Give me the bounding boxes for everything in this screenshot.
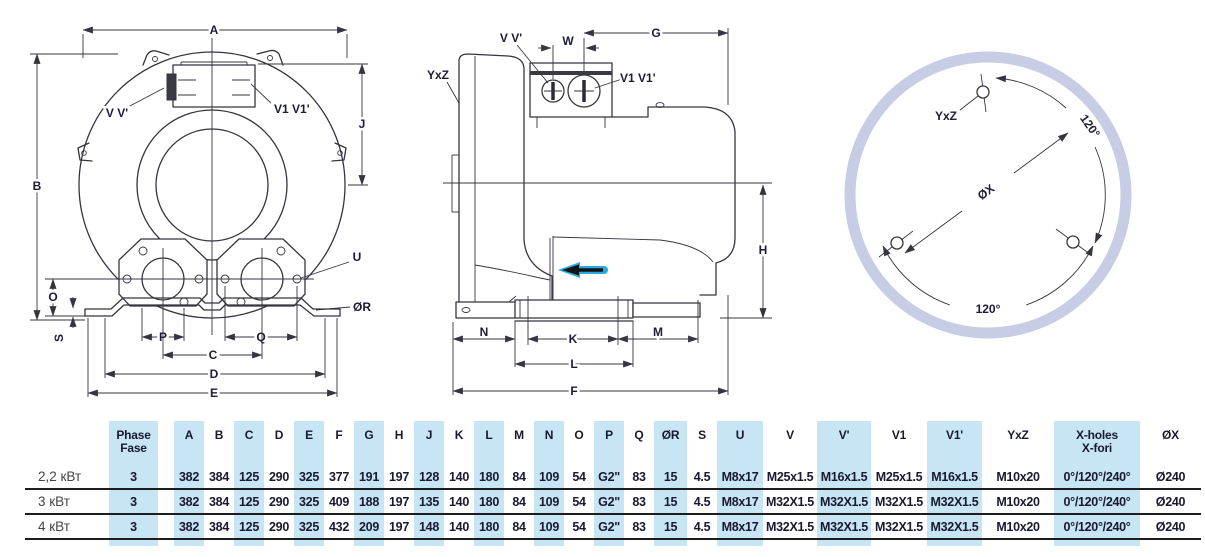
col-header: A [174,421,204,465]
table-cell: 140 [444,465,474,489]
dim-label-E: E [210,386,218,400]
label-OX: ØX [975,181,997,203]
table-cell: 180 [474,465,504,489]
table-cell: 4.5 [687,489,717,514]
col-header: M [504,421,534,465]
col-header: H [384,421,414,465]
table-cell: 384 [204,514,234,539]
col-header: J [414,421,444,465]
row-label: 3 кВт [25,489,109,514]
dim-label-H: H [759,243,768,257]
table-cell: M32X1.5 [763,514,817,539]
table-cell: G2" [594,514,624,539]
table-cell: M32X1.5 [927,514,982,539]
table-cell: 384 [204,465,234,489]
table-cell: M25x1.5 [763,465,817,489]
table-cell: 3 [109,514,158,539]
table-cell: 54 [564,489,594,514]
table-cell: M25x1.5 [871,465,927,489]
table-cell: 325 [294,489,324,514]
header-text: Fase [109,442,158,455]
table-cell: Ø240 [1140,465,1201,489]
table-cell: M8x17 [717,465,763,489]
table-cell: M32X1.5 [763,489,817,514]
dim-label-O: O [48,290,57,304]
table-cell: 0°/120°/240° [1054,465,1140,489]
table-cell: G2" [594,489,624,514]
table-cell: 15 [654,465,687,489]
table-cell: 148 [414,514,444,539]
table-cell: 4.5 [687,514,717,539]
table-cell: 3 [109,489,158,514]
table-cell: 140 [444,514,474,539]
table-cell: 15 [654,514,687,539]
table-cell: 409 [324,489,354,514]
table-cell: 125 [234,514,264,539]
table-cell: 128 [414,465,444,489]
dim-label-G: G [651,26,660,40]
row-label: 4 кВт [25,514,109,539]
stripe-footer [25,539,1201,546]
dim-label-C: C [209,348,218,362]
cable-gland [167,74,176,100]
table-cell: 209 [354,514,384,539]
table-cell: 382 [174,489,204,514]
gap-cell [158,489,174,514]
table-cell: 15 [654,489,687,514]
label-v1v1: V1 V1' [274,102,310,116]
table-cell: 135 [414,489,444,514]
label-OR: ØR [353,300,371,314]
dimensions-table: Phase Fase A B C D E F G H J K L M N O P… [25,421,1201,546]
dim-label-J: J [359,117,366,131]
table-cell: 325 [294,514,324,539]
dim-label-M: M [653,325,663,339]
dim-label-K: K [569,332,578,346]
dim-label-D: D [210,367,219,381]
header-text: X-fori [1054,442,1140,455]
dimensions-table-wrap: Phase Fase A B C D E F G H J K L M N O P… [25,421,1201,546]
col-header: S [687,421,717,465]
col-header: ØX [1140,421,1201,465]
table-cell: M32X1.5 [871,514,927,539]
table-cell: 84 [504,465,534,489]
flange-view: ØX 120° 120° YxZ [850,57,1126,333]
table-cell: 109 [534,465,564,489]
label-120-bottom: 120° [976,302,1001,316]
table-cell: 3 [109,465,158,489]
corner-cell [25,421,109,465]
table-row: 4 кВт 3 382 384 125 290 325 432 209 197 … [25,514,1201,539]
col-header-phase: Phase Fase [109,421,158,465]
table-cell: M32X1.5 [927,489,982,514]
dim-label-B: B [33,179,42,193]
table-cell: 180 [474,489,504,514]
col-header: U [717,421,763,465]
table-cell: 290 [264,514,294,539]
dim-label-W: W [562,34,574,48]
table-cell: 54 [564,514,594,539]
table-cell: M10x20 [982,489,1054,514]
table-cell: M16x1.5 [927,465,982,489]
col-header: V1 [871,421,927,465]
dim-label-Q: Q [256,330,265,344]
dim-label-F: F [570,384,577,398]
table-cell: M16x1.5 [817,465,871,489]
table-cell: 384 [204,489,234,514]
table-cell: 125 [234,489,264,514]
col-header: Q [624,421,654,465]
table-cell: 84 [504,514,534,539]
label-vv: V V' [106,106,128,120]
table-cell: 382 [174,514,204,539]
dim-label-L: L [570,357,577,371]
table-cell: 325 [294,465,324,489]
table-cell: M10x20 [982,514,1054,539]
table-cell: M32X1.5 [817,489,871,514]
header-row: Phase Fase A B C D E F G H J K L M N O P… [25,421,1201,465]
label-yxz-flange: YxZ [935,109,957,123]
table-cell: 83 [624,489,654,514]
table-cell: 109 [534,514,564,539]
dim-label-N: N [480,325,489,339]
front-view: A B J V V' V1 V1' O S P Q [30,23,371,400]
col-header: L [474,421,504,465]
col-header: F [324,421,354,465]
table-cell: 377 [324,465,354,489]
col-header: C [234,421,264,465]
table-cell: 197 [384,465,414,489]
airflow-arrow [558,262,604,278]
col-header: E [294,421,324,465]
table-cell: 0°/120°/240° [1054,489,1140,514]
datasheet-page: A B J V V' V1 V1' O S P Q [0,0,1205,557]
dim-label-S: S [52,334,66,342]
table-cell: 290 [264,465,294,489]
technical-drawing: A B J V V' V1 V1' O S P Q [0,0,1205,420]
table-cell: M32X1.5 [817,514,871,539]
col-header-xholes: X-holes X-fori [1054,421,1140,465]
table-cell: 197 [384,514,414,539]
table-cell: 191 [354,465,384,489]
col-header: N [534,421,564,465]
label-U: U [353,250,362,264]
table-cell: 140 [444,489,474,514]
table-cell: 84 [504,489,534,514]
dim-label-A: A [210,23,219,37]
label-v1v1-side: V1 V1' [620,71,656,85]
col-header: G [354,421,384,465]
table-cell: 180 [474,514,504,539]
table-cell: Ø240 [1140,489,1201,514]
table-cell: 4.5 [687,465,717,489]
table-cell: 188 [354,489,384,514]
col-header: B [204,421,234,465]
table-cell: M8x17 [717,489,763,514]
table-cell: M8x17 [717,514,763,539]
col-header: O [564,421,594,465]
table-cell: 0°/120°/240° [1054,514,1140,539]
table-cell: Ø240 [1140,514,1201,539]
label-vv-side: V V' [500,31,522,45]
table-cell: 197 [384,489,414,514]
side-view: G W V V' V1 V1' YxZ H N K M L [427,26,772,398]
table-cell: 382 [174,465,204,489]
label-yxz-side: YxZ [427,68,449,82]
gap-cell [158,465,174,489]
table-row: 2,2 кВт 3 382 384 125 290 325 377 191 19… [25,465,1201,489]
table-cell: 109 [534,489,564,514]
table-row: 3 кВт 3 382 384 125 290 325 409 188 197 … [25,489,1201,514]
col-header: V1' [927,421,982,465]
table-cell: M32X1.5 [871,489,927,514]
col-header: D [264,421,294,465]
table-cell: 432 [324,514,354,539]
row-label: 2,2 кВт [25,465,109,489]
col-header: ØR [654,421,687,465]
table-cell: M10x20 [982,465,1054,489]
col-header: YxZ [982,421,1054,465]
gap-cell [158,514,174,539]
col-header: P [594,421,624,465]
table-cell: 290 [264,489,294,514]
col-header: V [763,421,817,465]
table-cell: 83 [624,514,654,539]
col-header: V' [817,421,871,465]
col-header: K [444,421,474,465]
table-cell: 83 [624,465,654,489]
table-cell: 54 [564,465,594,489]
gap-cell [158,421,174,465]
table-cell: G2" [594,465,624,489]
table-cell: 125 [234,465,264,489]
